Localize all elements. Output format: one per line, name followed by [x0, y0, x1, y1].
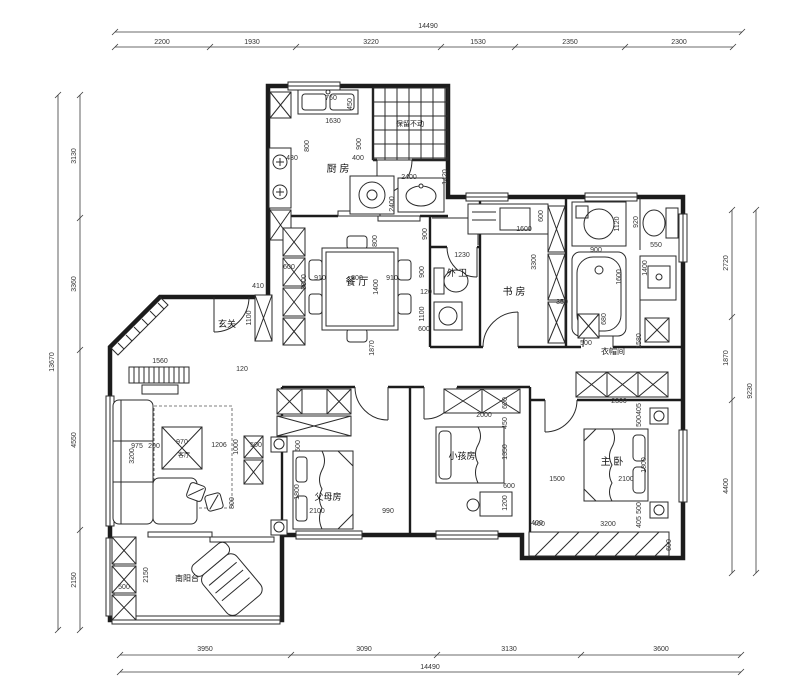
dim-label: 3950	[197, 646, 213, 653]
cabinet-unit	[548, 254, 565, 300]
dim-label: 430	[286, 155, 298, 162]
dim-label: 1206	[211, 442, 227, 449]
room-label: 衣帽间	[601, 346, 625, 356]
dim-label: 500	[636, 415, 643, 427]
room-label: 玄关	[218, 318, 236, 329]
dim-label: 500	[250, 442, 262, 449]
dim-label: 2100	[309, 508, 325, 515]
dim-label: 4400	[723, 478, 730, 494]
dim-label: 3090	[356, 646, 372, 653]
dim-label: 1000	[233, 439, 240, 455]
laundry-fixtures	[350, 176, 444, 214]
dim-label: 120	[236, 366, 248, 373]
room-label: 父母房	[314, 491, 341, 502]
dim-label: 405	[636, 403, 643, 415]
study-door	[483, 312, 518, 347]
dim-label: 1930	[244, 39, 260, 46]
dim-label: 550	[650, 242, 662, 249]
dim-label: 1400	[642, 260, 649, 276]
dim-label: 1420	[442, 169, 449, 185]
cabinet-unit	[283, 318, 305, 345]
cabinet-unit	[607, 372, 638, 397]
dim-label: 2150	[143, 567, 150, 583]
cabinet-unit	[548, 206, 565, 252]
room-label: 南阳台	[175, 573, 199, 583]
dim-label: 3300	[531, 254, 538, 270]
cabinet-unit	[482, 389, 520, 413]
window	[288, 82, 340, 90]
dim-label: 975	[131, 443, 143, 450]
dim-label: 990	[382, 508, 394, 515]
balcony-furniture	[189, 540, 265, 619]
parents-room-furniture	[271, 437, 353, 535]
dim-label: 1100	[246, 310, 253, 325]
dim-label: 1400	[373, 279, 380, 295]
dim-label: 400	[531, 520, 543, 527]
dim-label: 1600	[616, 269, 623, 285]
dim-label: 600	[502, 397, 509, 409]
study-furniture	[468, 204, 548, 234]
dim-label: 3000	[301, 274, 308, 290]
room-label: 客厅	[178, 451, 190, 459]
dim-label: 1120	[614, 216, 621, 231]
dim-label: 900	[419, 266, 426, 278]
room-label: 书 房	[503, 285, 526, 298]
dim-label: 910	[314, 275, 326, 282]
balcony-sliding-door	[148, 532, 274, 542]
dim-label: 120	[420, 289, 432, 296]
dim-label: 2720	[723, 255, 730, 271]
dim-label: 500	[580, 340, 592, 347]
dim-label: 1530	[470, 39, 486, 46]
cabinet-unit	[255, 295, 272, 341]
dim-label: 2300	[671, 39, 687, 46]
cabinet-unit	[638, 372, 668, 397]
dim-label: 800	[372, 235, 379, 247]
cabinet-unit	[244, 460, 263, 484]
dim-label: 2000	[476, 412, 492, 419]
dim-label: 600	[283, 264, 295, 271]
cabinet-unit	[283, 228, 305, 256]
floor-plan-canvas: 厨 房保留不动餐 厅玄关外 卫书 房衣帽间客厅父母房小孩房主 卧南阳台14490…	[0, 0, 800, 689]
cabinet-unit	[578, 314, 599, 338]
dim-label: 1800	[294, 484, 301, 500]
dim-label: 600	[666, 539, 673, 551]
dim-label: 680	[601, 313, 608, 325]
dim-label: 500	[118, 584, 130, 591]
window	[296, 531, 362, 539]
dim-label: 600	[503, 483, 515, 490]
window	[679, 430, 687, 502]
dim-label: 2350	[562, 39, 578, 46]
dim-label: 9230	[747, 383, 754, 399]
window	[679, 214, 687, 262]
dim-label: 3200	[129, 448, 136, 464]
dim-label: 3360	[71, 276, 78, 292]
dim-label: 3200	[600, 521, 616, 528]
dim-label: 1580	[636, 333, 643, 349]
dim-label: 2200	[154, 39, 170, 46]
room-label: 保留不动	[396, 119, 424, 128]
room-label: 小孩房	[448, 450, 475, 461]
dim-label: 3600	[653, 646, 669, 653]
dim-label: 1600	[516, 226, 532, 233]
dim-label: 600	[538, 210, 545, 222]
dim-label: 13670	[49, 352, 56, 372]
dim-label: 1560	[152, 358, 168, 365]
dim-label: 760	[325, 95, 337, 102]
dim-label: 1800	[641, 457, 648, 473]
dim-label: 1230	[454, 252, 470, 259]
dim-label: 2400	[401, 174, 417, 181]
dim-label: 1870	[369, 340, 376, 356]
window	[436, 531, 498, 539]
dim-label: 800	[304, 140, 311, 152]
dim-label: 900	[590, 247, 602, 254]
dim-label: 450	[347, 98, 354, 110]
dim-label: 2400	[389, 196, 396, 212]
kids-room-furniture	[436, 427, 512, 516]
cabinet-unit	[548, 302, 565, 343]
dim-label: 410	[252, 283, 264, 290]
cabinet-unit	[270, 92, 291, 118]
master-room-door	[545, 400, 577, 432]
cabinet-unit	[283, 288, 305, 316]
dim-label: 4550	[71, 432, 78, 448]
window	[112, 616, 280, 624]
dining-table-set	[309, 236, 411, 342]
dim-label: 3220	[363, 39, 379, 46]
dim-label: 1870	[723, 350, 730, 366]
window	[585, 193, 637, 201]
floor-plan-drawing: 厨 房保留不动餐 厅玄关外 卫书 房衣帽间客厅父母房小孩房主 卧南阳台14490…	[0, 0, 800, 689]
dim-label: 1200	[502, 495, 509, 511]
dim-label: 900	[422, 228, 429, 240]
cabinet-unit	[444, 389, 482, 413]
room-label: 外 卫	[447, 267, 468, 278]
dim-label: 800	[351, 275, 363, 282]
dim-label: 1630	[325, 118, 341, 125]
dim-label: 200	[148, 443, 160, 450]
cabinet-unit	[112, 537, 136, 564]
entry-hatched-wall	[110, 297, 168, 355]
dim-label: 500	[636, 502, 643, 514]
parents-room-door	[355, 387, 388, 420]
window	[466, 193, 508, 201]
room-label: 厨 房	[327, 162, 350, 175]
dim-label: 900	[356, 138, 363, 150]
dim-label: 920	[633, 216, 640, 228]
cabinet-unit	[112, 595, 136, 620]
dim-label: 1350	[502, 444, 509, 460]
cabinet-unit	[327, 389, 351, 414]
dim-label: 14490	[420, 664, 440, 671]
dim-label: 2300	[611, 398, 627, 405]
dim-label: 3130	[501, 646, 517, 653]
dim-label: 350	[556, 299, 568, 306]
dim-label: 1500	[549, 476, 565, 483]
cabinet-unit	[576, 372, 607, 397]
dim-label: 2100	[618, 476, 634, 483]
dim-label: 14490	[418, 23, 438, 30]
dim-label: 400	[352, 155, 364, 162]
dim-label: 405	[636, 516, 643, 528]
dim-label: 600	[418, 326, 430, 333]
dim-label: 970	[176, 439, 188, 446]
dim-label: 800	[229, 497, 236, 509]
cabinet-unit	[645, 318, 669, 342]
dim-label: 3130	[71, 148, 78, 164]
dim-label: 2150	[71, 572, 78, 588]
cabinet-unit	[277, 389, 302, 414]
cabinet-unit	[277, 416, 351, 436]
dim-label: 910	[386, 275, 398, 282]
dim-label: 1100	[419, 306, 426, 321]
room-label: 主 卧	[601, 455, 624, 468]
dim-label: 500	[295, 440, 302, 452]
dim-label: 450	[502, 417, 509, 429]
